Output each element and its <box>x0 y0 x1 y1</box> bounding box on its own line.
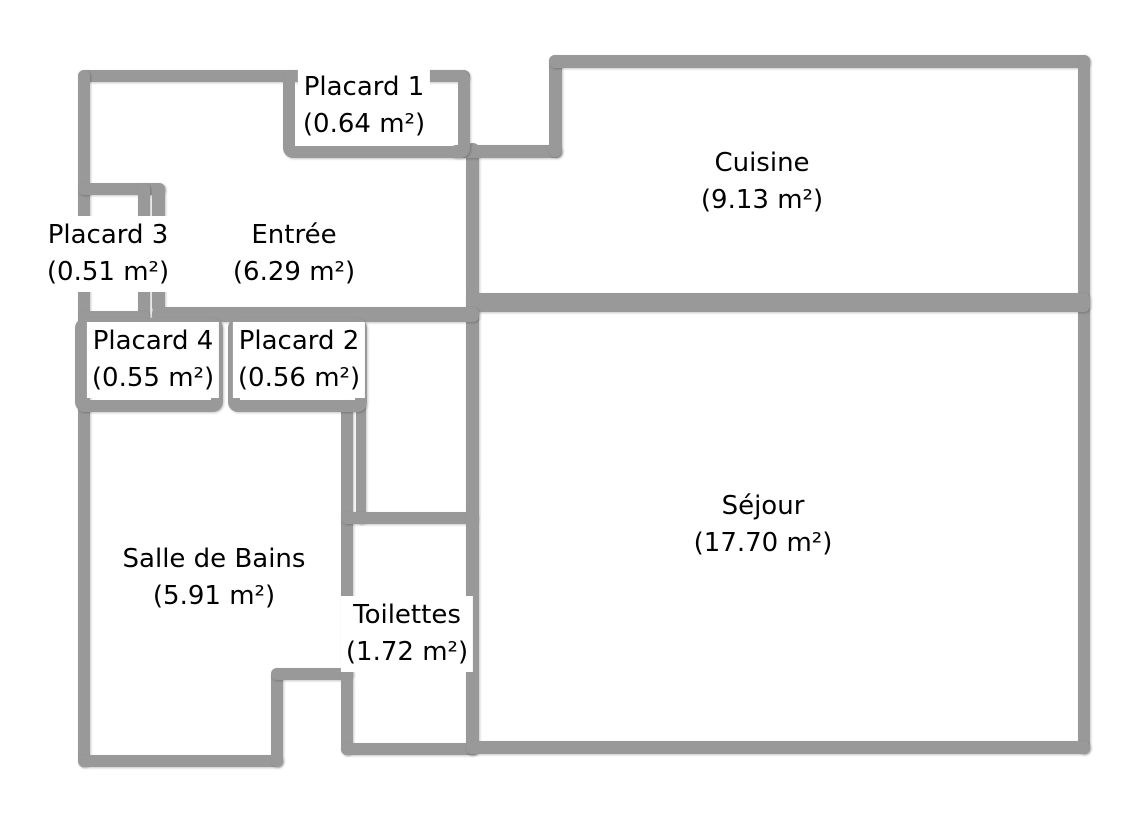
cuisine-left-riser <box>549 55 562 157</box>
room-area: (0.51 m²) <box>47 254 169 291</box>
toilettes-top-wall <box>341 512 478 524</box>
bath-toilet-seam-wall <box>356 400 366 524</box>
bathroom-bottom-wall <box>78 755 283 767</box>
toilettes-bottom-wall <box>341 743 478 755</box>
room-name: Entrée <box>233 217 355 254</box>
room-label-toilettes: Toilettes(1.72 m²) <box>341 596 473 672</box>
room-label-placard-1: Placard 1(0.64 m²) <box>298 68 430 144</box>
room-area: (5.91 m²) <box>123 578 306 615</box>
room-area: (1.72 m²) <box>346 634 468 671</box>
room-area: (0.64 m²) <box>303 106 425 143</box>
room-label-entree: Entrée(6.29 m²) <box>228 216 360 292</box>
notch-vertical-wall <box>271 668 283 767</box>
room-area: (17.70 m²) <box>694 525 833 562</box>
room-name: Placard 4 <box>92 323 214 360</box>
room-name: Placard 2 <box>238 323 360 360</box>
room-label-placard-3: Placard 3(0.51 m²) <box>42 216 174 292</box>
bath-toilet-wall <box>341 400 353 755</box>
room-name: Placard 1 <box>303 69 425 106</box>
right-exterior-wall <box>1078 55 1090 754</box>
room-name: Salle de Bains <box>123 541 306 578</box>
room-name: Cuisine <box>701 145 823 182</box>
left-exterior-wall <box>78 70 90 767</box>
room-label-placard-2: Placard 2(0.56 m²) <box>233 322 365 398</box>
top-exterior-wall <box>549 55 1090 68</box>
room-area: (0.55 m²) <box>92 360 214 397</box>
floor-plan: Placard 1(0.64 m²)Cuisine(9.13 m²)Placar… <box>0 0 1128 818</box>
room-area: (0.56 m²) <box>238 360 360 397</box>
cuisine-sejour-wall <box>466 293 1090 312</box>
room-label-placard-4: Placard 4(0.55 m²) <box>87 322 219 398</box>
room-label-sejour: Séjour(17.70 m²) <box>689 487 838 563</box>
room-name: Séjour <box>694 488 833 525</box>
room-name: Placard 3 <box>47 217 169 254</box>
room-area: (9.13 m²) <box>701 182 823 219</box>
room-label-cuisine: Cuisine(9.13 m²) <box>696 144 828 220</box>
room-label-salle-de-bains: Salle de Bains(5.91 m²) <box>118 540 311 616</box>
room-name: Toilettes <box>346 597 468 634</box>
sejour-bottom-wall <box>466 741 1090 754</box>
room-area: (6.29 m²) <box>233 254 355 291</box>
